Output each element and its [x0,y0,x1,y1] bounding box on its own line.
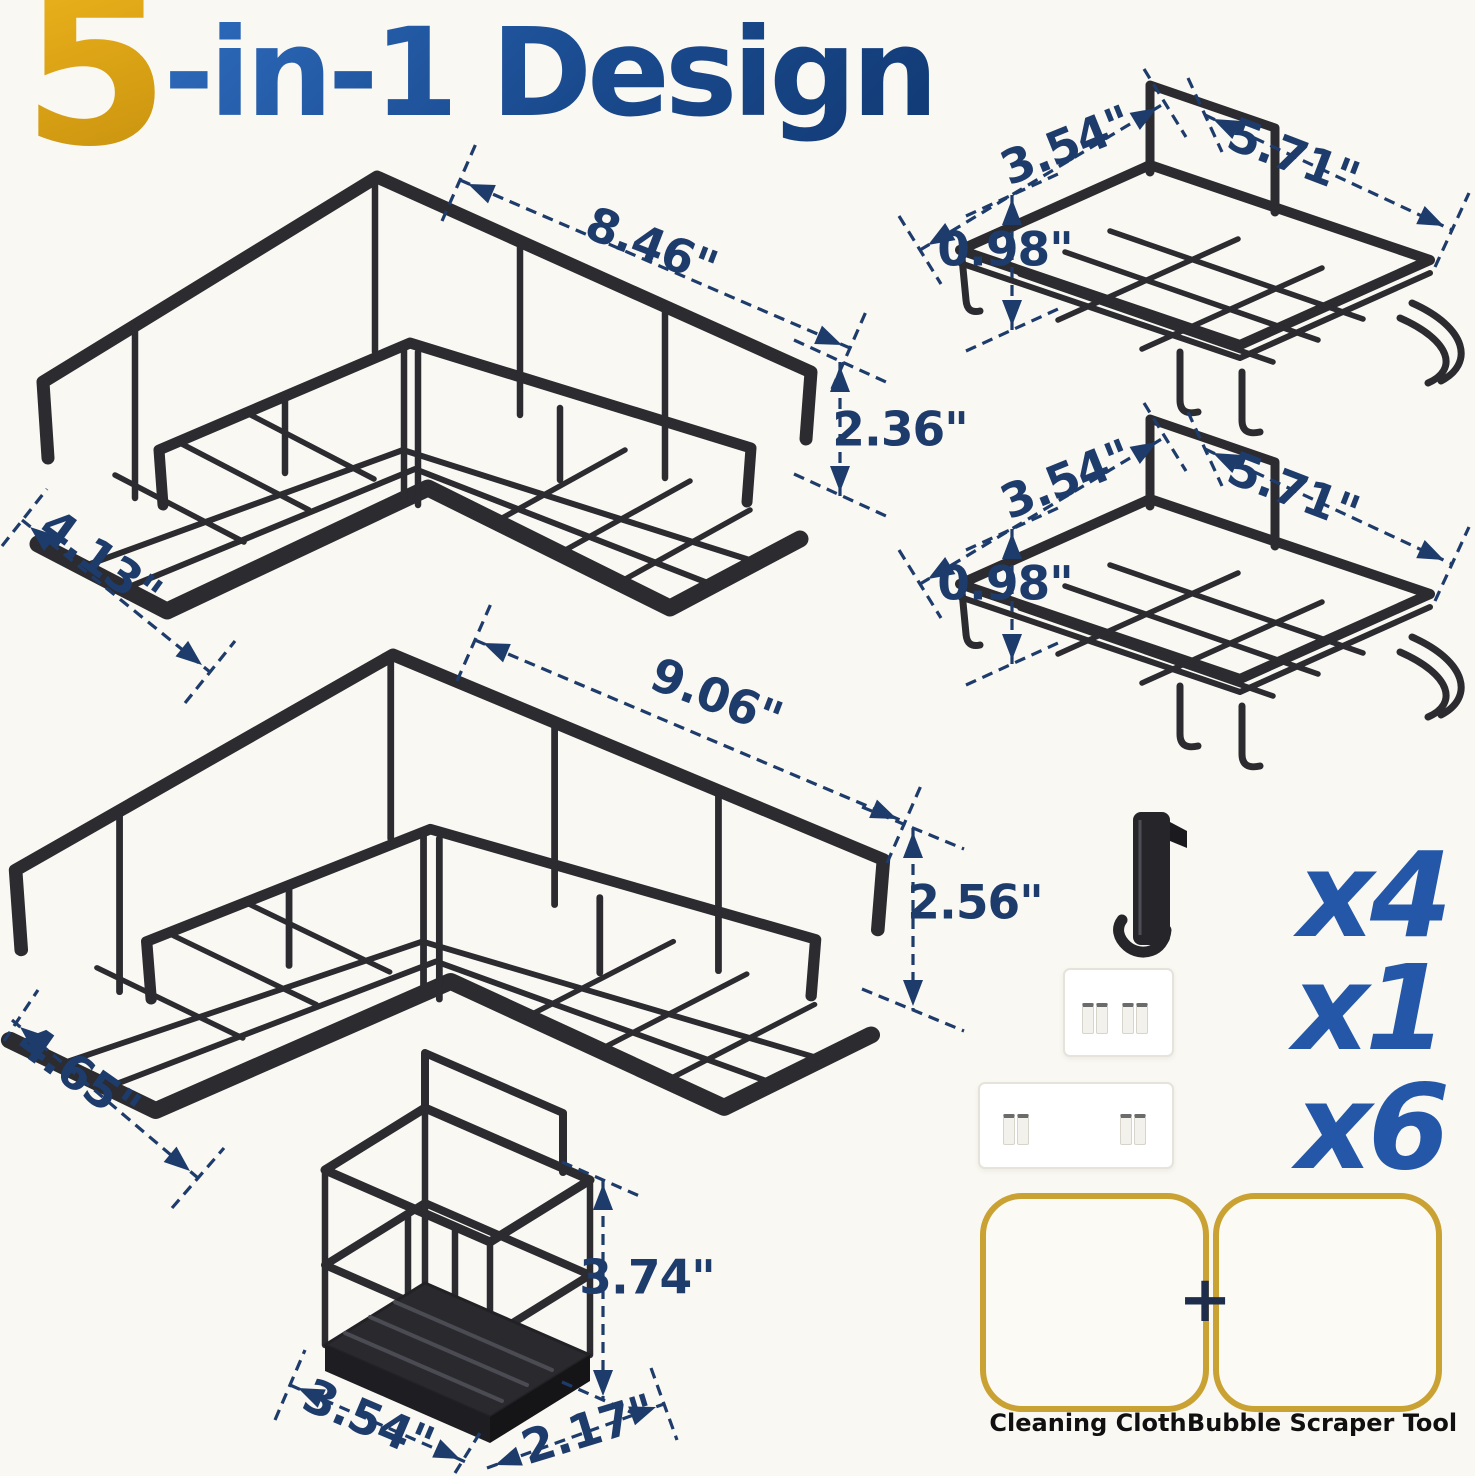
adhesive-pad-large [978,1082,1174,1169]
cleaning-cloth-caption: Cleaning Cloth [989,1409,1186,1437]
bubble-scraper-box [1213,1193,1442,1412]
adhesive-tab [1134,1114,1146,1145]
adhesive-small-quantity-label: x1 [1293,939,1443,1077]
product-diagram-page: 5-in-1 Design 8.46" 2.36" 4.13" 9.06" 2.… [0,0,1475,1475]
adhesive-large-quantity-label: x6 [1296,1058,1446,1196]
adhesive-tab [1082,1003,1094,1034]
plus-sign: + [1178,1263,1232,1337]
dim-caddy-small-height: 2.36" [832,403,967,458]
adhesive-tab [1136,1003,1148,1034]
bubble-scraper-caption: Bubble Scraper Tool [1187,1409,1457,1437]
adhesive-pad-small [1063,968,1174,1057]
adhesive-tab [1096,1003,1108,1034]
dim-holder-height: 3.74" [579,1251,714,1306]
adhesive-tab [1120,1114,1132,1145]
adhesive-tab [1122,1003,1134,1034]
adhesive-tab [1017,1114,1029,1145]
title-number: 5 [22,0,164,193]
title-text: -in-1 Design [164,2,934,144]
dim-shelf-top-height: 0.98" [937,223,1072,278]
adhesive-tab [1003,1114,1015,1145]
page-title: 5-in-1 Design [22,0,933,193]
dim-caddy-large-height: 2.56" [907,876,1042,931]
cleaning-cloth-box [980,1193,1209,1412]
dim-shelf-bottom-height: 0.98" [937,557,1072,612]
